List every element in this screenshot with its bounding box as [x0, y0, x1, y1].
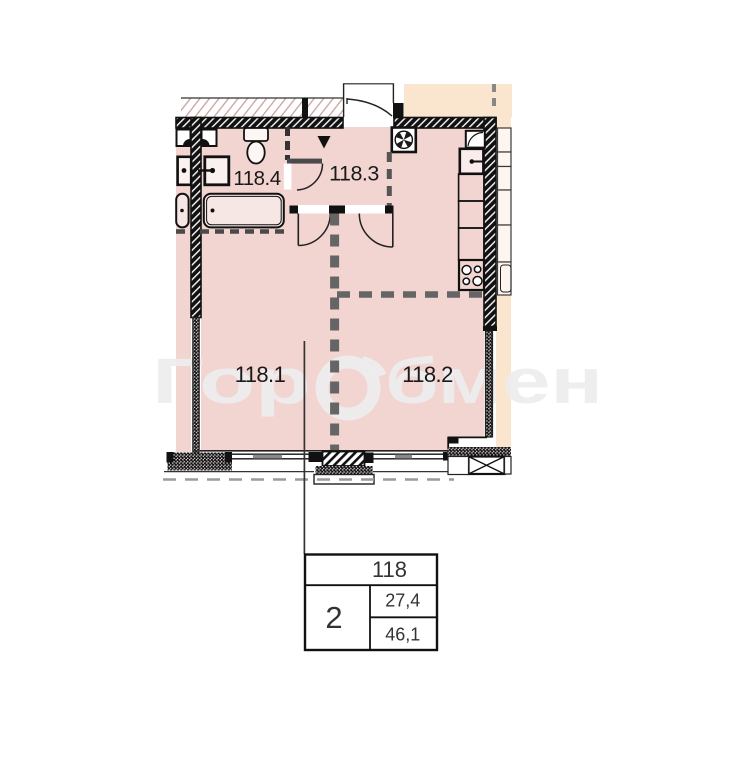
svg-text:27,4: 27,4 [385, 591, 420, 611]
svg-text:46,1: 46,1 [385, 624, 420, 644]
svg-text:Гор: Гор [152, 345, 311, 417]
svg-text:118.1: 118.1 [235, 362, 286, 387]
svg-text:118.3: 118.3 [329, 162, 379, 186]
svg-text:118.4: 118.4 [233, 167, 280, 190]
svg-text:118: 118 [372, 557, 407, 582]
svg-text:118.2: 118.2 [402, 362, 453, 387]
svg-text:2: 2 [325, 600, 342, 635]
